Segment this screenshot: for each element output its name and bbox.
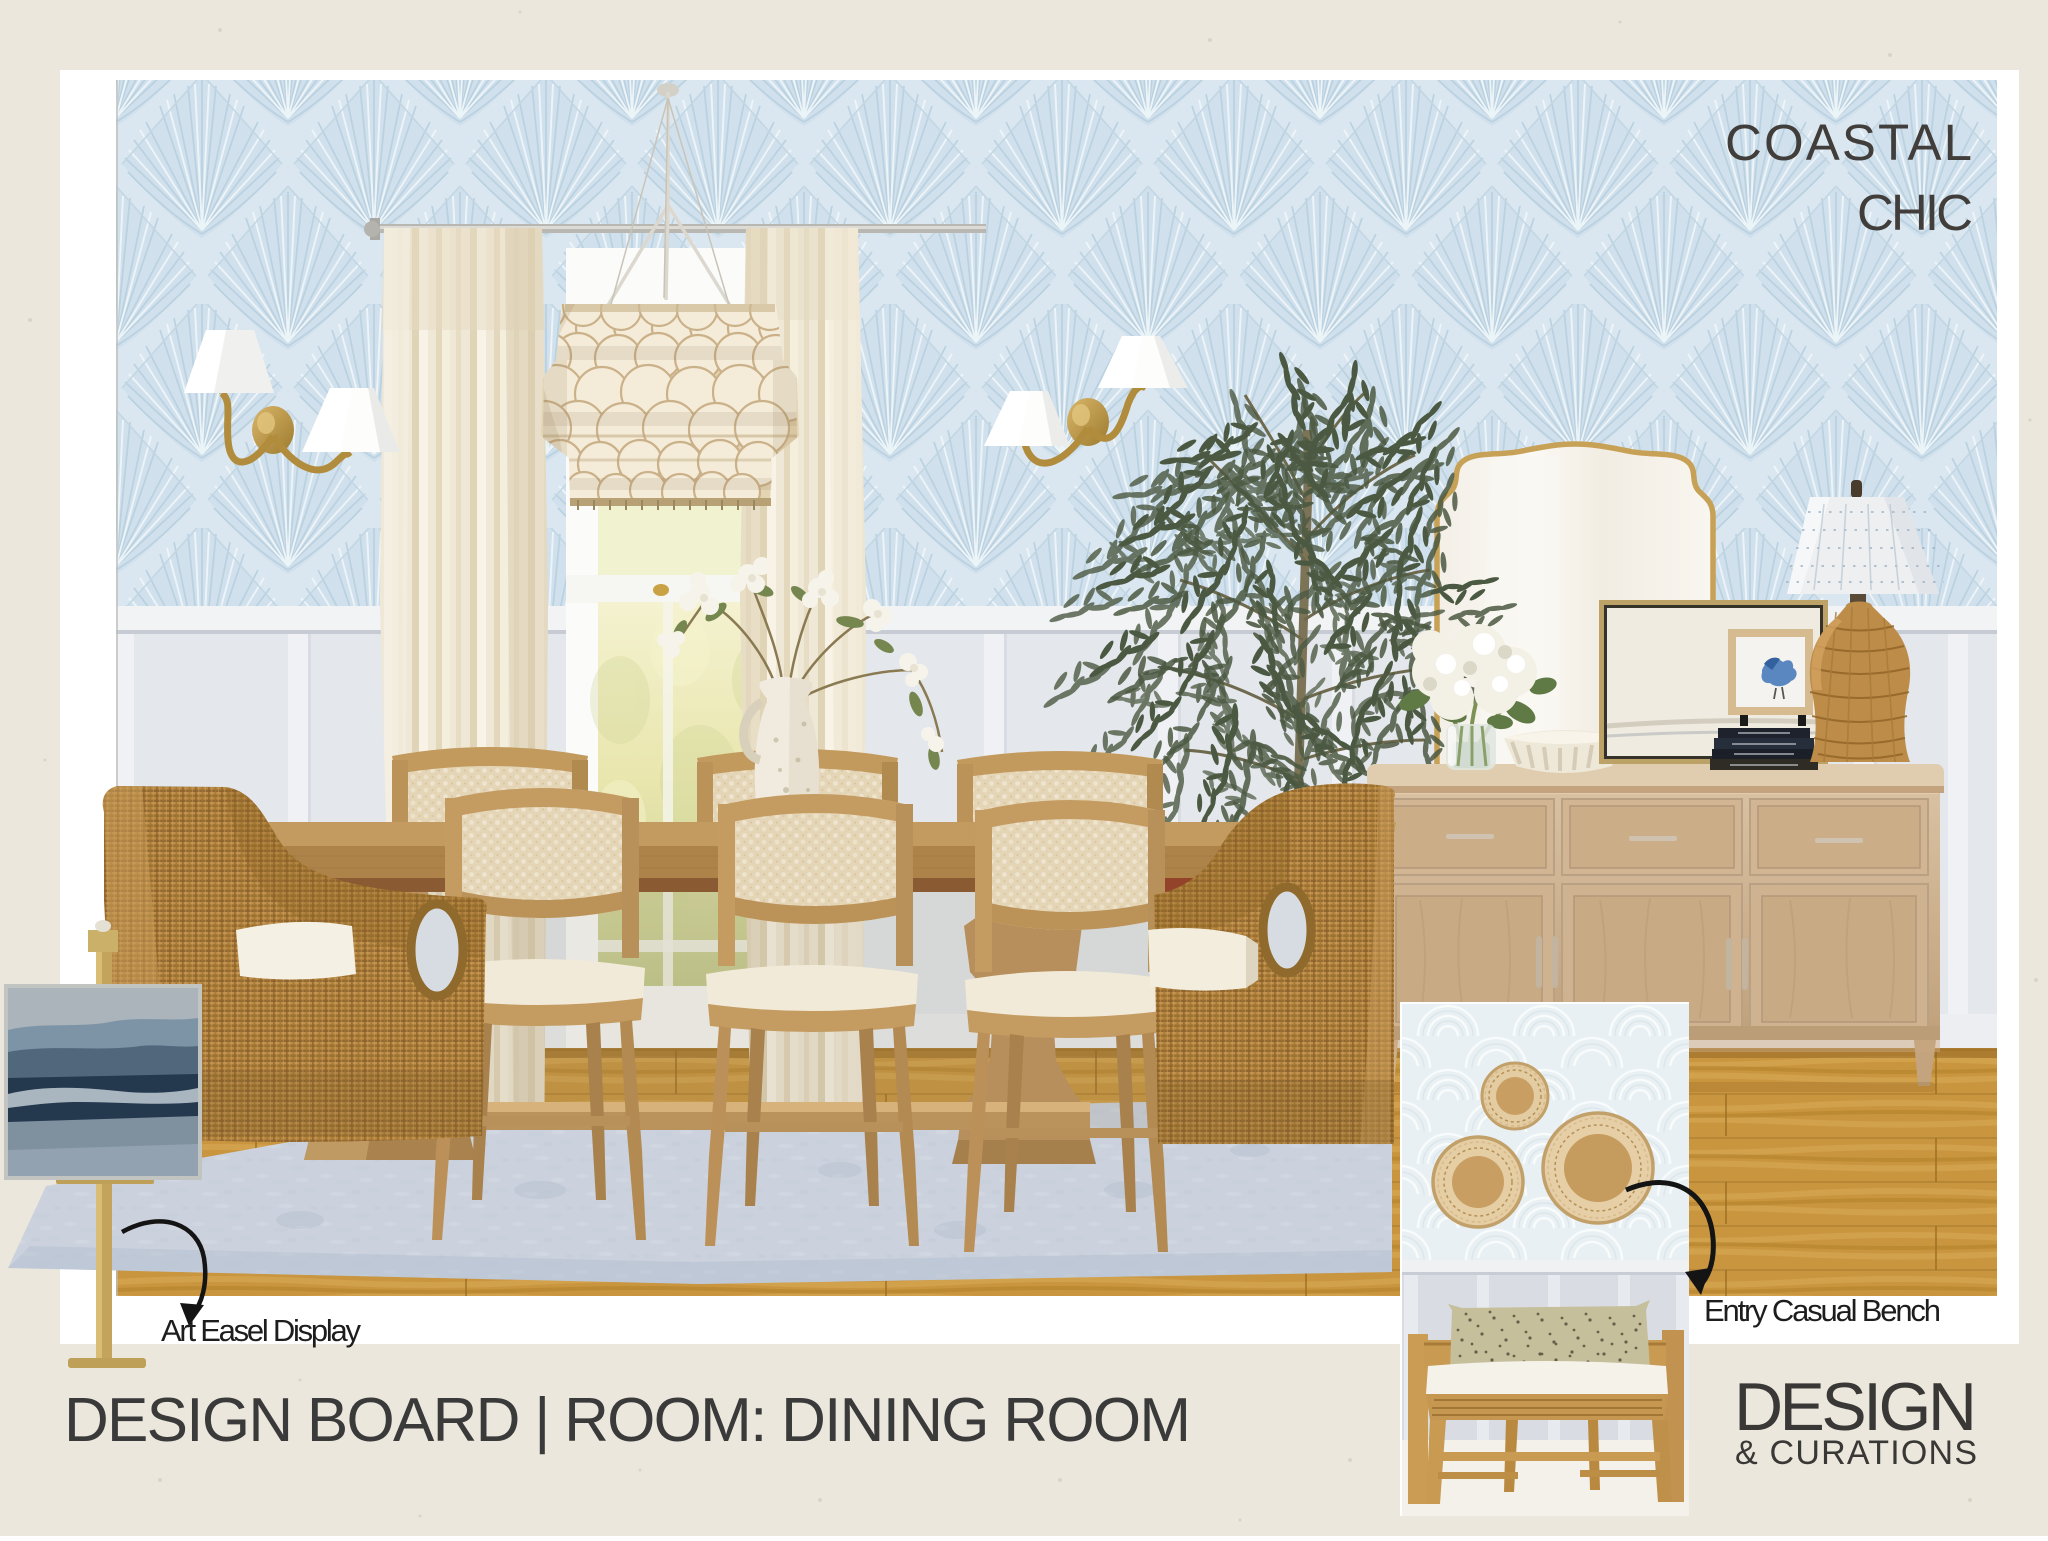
svg-text:& CURATIONS: & CURATIONS (1735, 1434, 1977, 1472)
svg-text:CHIC: CHIC (1857, 184, 1973, 241)
svg-text:DESIGN BOARD | ROOM: DINING RO: DESIGN BOARD | ROOM: DINING ROOM (64, 1386, 1191, 1455)
svg-text:Entry Casual Bench: Entry Casual Bench (1704, 1293, 1941, 1328)
svg-text:Art Easel Display: Art Easel Display (161, 1313, 362, 1348)
